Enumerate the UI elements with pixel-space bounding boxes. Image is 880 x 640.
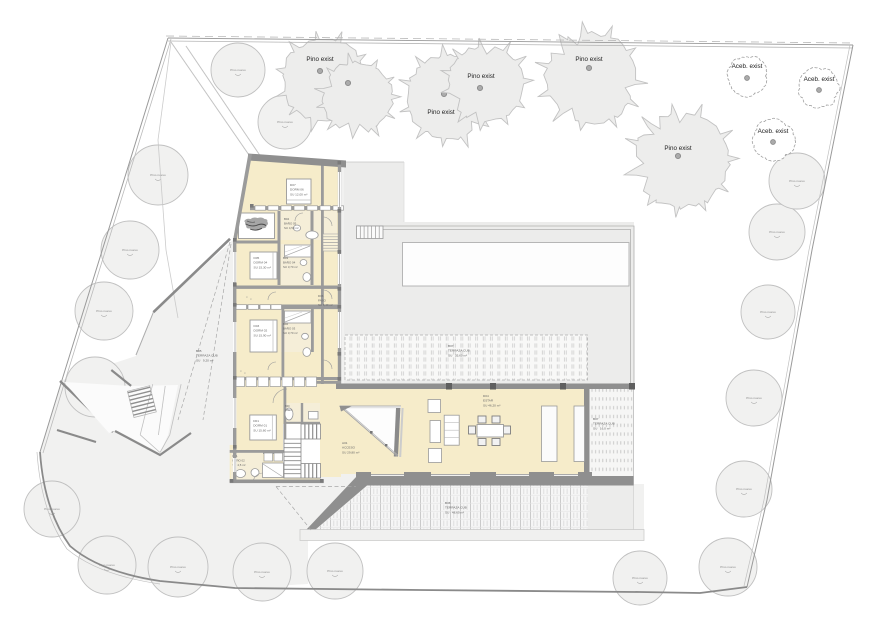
svg-text:×: ×	[246, 295, 248, 299]
svg-text:ESTAR: ESTAR	[483, 399, 494, 403]
svg-text:B07: B07	[593, 417, 599, 421]
svg-text:SU 6,40 m²: SU 6,40 m²	[318, 303, 333, 307]
svg-text:SU 48,60 m²: SU 48,60 m²	[445, 510, 464, 514]
svg-text:Pino nuevo: Pino nuevo	[789, 179, 805, 183]
svg-text:BAÑO 04: BAÑO 04	[283, 260, 296, 265]
svg-text:B04: B04	[284, 217, 290, 221]
svg-text:Pino nuevo: Pino nuevo	[150, 173, 166, 177]
svg-text:Pino exist: Pino exist	[664, 145, 692, 152]
svg-text:D07: D07	[290, 183, 296, 187]
svg-text:Pino nuevo: Pino nuevo	[720, 565, 736, 569]
svg-text:PASO: PASO	[318, 299, 327, 303]
svg-text:TERRAZA CUB: TERRAZA CUB	[196, 354, 218, 358]
svg-text:BAÑO 05: BAÑO 05	[284, 221, 297, 226]
svg-text:SU 9,20 m²: SU 9,20 m²	[196, 358, 213, 362]
svg-text:A01: A01	[342, 441, 348, 445]
svg-text:ASEO: ASEO	[285, 408, 292, 412]
svg-text:D06: D06	[318, 294, 324, 298]
svg-text:SU 3,70 m²: SU 3,70 m²	[283, 265, 298, 269]
svg-text:Pino exist: Pino exist	[306, 56, 334, 63]
svg-text:Pino nuevo: Pino nuevo	[769, 230, 785, 234]
svg-text:Aceb. exist: Aceb. exist	[732, 63, 763, 70]
svg-text:SU 15,60 m²: SU 15,60 m²	[253, 428, 270, 432]
svg-text:Aceb. exist: Aceb. exist	[758, 128, 789, 135]
svg-text:×: ×	[240, 369, 242, 373]
svg-text:Pino nuevo: Pino nuevo	[736, 487, 752, 491]
svg-text:B02: B02	[283, 322, 289, 326]
svg-text:D01: D01	[253, 419, 259, 423]
svg-text:Pino nuevo: Pino nuevo	[760, 310, 776, 314]
svg-text:SU 16,0 m²: SU 16,0 m²	[593, 426, 610, 430]
svg-text:SU 29,80 m²: SU 29,80 m²	[342, 450, 359, 454]
svg-text:Pino nuevo: Pino nuevo	[746, 396, 762, 400]
svg-text:Aceb. exist: Aceb. exist	[804, 76, 835, 83]
svg-text:×: ×	[250, 297, 252, 301]
svg-text:Pino nuevo: Pino nuevo	[230, 68, 246, 72]
svg-text:TERRAZA CUB: TERRAZA CUB	[593, 422, 615, 426]
svg-text:TERRAZA CUB: TERRAZA CUB	[448, 349, 470, 353]
svg-text:Pino nuevo: Pino nuevo	[122, 248, 138, 252]
svg-text:SU 46,20 m²: SU 46,20 m²	[483, 403, 500, 407]
svg-text:D03: D03	[254, 324, 260, 328]
svg-text:B03: B03	[283, 256, 289, 260]
svg-text:D05: D05	[254, 256, 260, 260]
svg-text:ACCESO: ACCESO	[342, 446, 356, 450]
svg-text:×: ×	[244, 371, 246, 375]
svg-text:Pino nuevo: Pino nuevo	[327, 569, 343, 573]
svg-text:B07: B07	[448, 344, 454, 348]
svg-text:D04: D04	[483, 394, 489, 398]
svg-text:SU 4,50 m²: SU 4,50 m²	[284, 226, 299, 230]
svg-text:Pino nuevo: Pino nuevo	[277, 120, 293, 124]
svg-text:Pino nuevo: Pino nuevo	[632, 576, 648, 580]
svg-text:SU 12,00 m²: SU 12,00 m²	[290, 192, 307, 196]
svg-text:Pino nuevo: Pino nuevo	[96, 309, 112, 313]
svg-text:B05: B05	[196, 349, 202, 353]
svg-text:DORM 06: DORM 06	[290, 188, 304, 192]
svg-text:Pino nuevo: Pino nuevo	[170, 565, 186, 569]
svg-text:DORM 01: DORM 01	[253, 424, 267, 428]
svg-text:Pino exist: Pino exist	[575, 56, 603, 63]
svg-text:B06: B06	[445, 501, 451, 505]
svg-text:Pino nuevo: Pino nuevo	[254, 570, 270, 574]
svg-text:TERRAZA CUB: TERRAZA CUB	[445, 506, 467, 510]
svg-text:SU 15,30 m²: SU 15,30 m²	[254, 265, 271, 269]
svg-text:DORM 04: DORM 04	[254, 261, 268, 265]
svg-text:DORM 02: DORM 02	[254, 329, 268, 333]
svg-text:Pino exist: Pino exist	[467, 73, 495, 80]
svg-text:SU 3,70 m²: SU 3,70 m²	[283, 331, 298, 335]
svg-text:Pino exist: Pino exist	[427, 109, 455, 116]
svg-text:SU 35,60 m²: SU 35,60 m²	[448, 353, 467, 357]
svg-text:SU 15,90 m²: SU 15,90 m²	[254, 333, 271, 337]
svg-text:B00: B00	[285, 404, 290, 408]
svg-text:BAÑO 03: BAÑO 03	[283, 326, 296, 331]
